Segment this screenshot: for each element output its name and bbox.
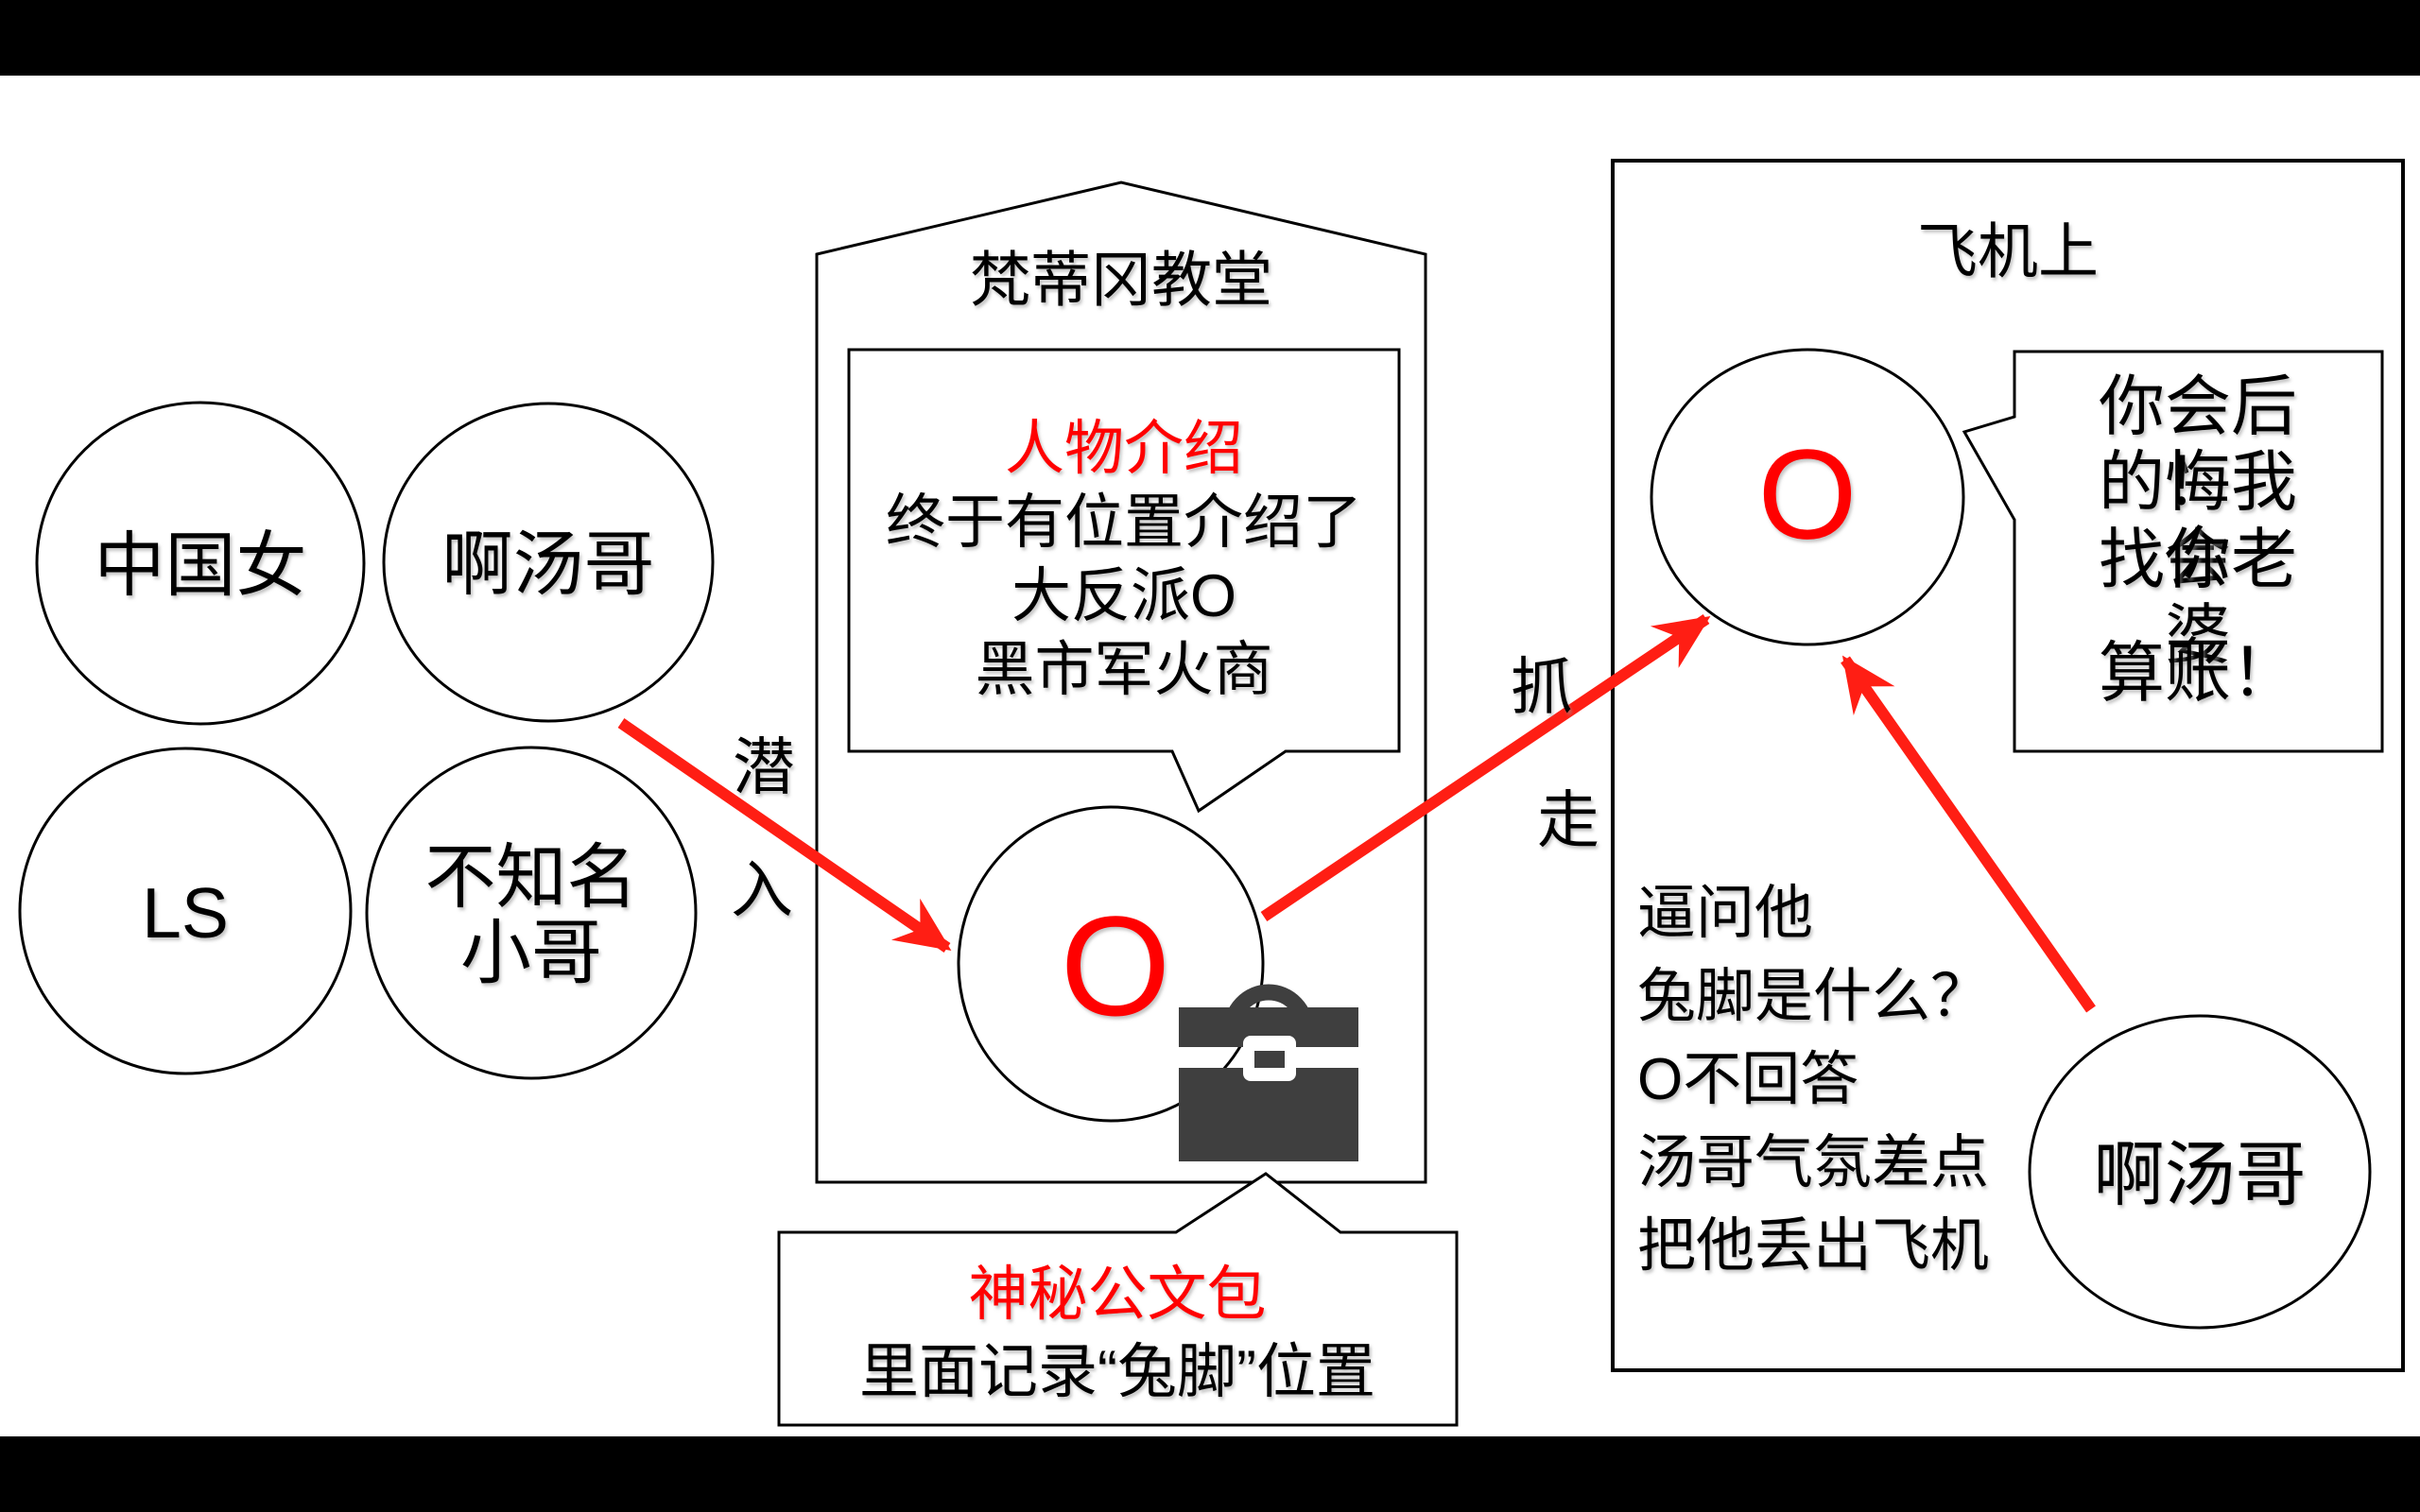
briefcase-icon (1179, 992, 1358, 1161)
sneak-label-1: 潜 (733, 728, 795, 806)
note-heading: 神秘公文包 (969, 1258, 1267, 1332)
label-chinese-woman: 中国女 (94, 527, 306, 603)
label-tom-plane: 啊汤哥 (2093, 1137, 2306, 1212)
sneak-label-2: 入 (731, 850, 793, 929)
narration-line-1: 逼问他 (1637, 865, 1813, 950)
intro-line-1: 终于有位置介绍了 (886, 486, 1362, 559)
label-ls: LS (142, 875, 229, 951)
villain-initial-plane: O (1757, 431, 1857, 558)
narration-line-5: 把他丢出飞机 (1637, 1197, 1989, 1282)
presentation-slide: 中国女 啊汤哥 LS 不知名 小哥 梵蒂冈教堂 人物介绍 终于有位置介绍了 大反… (0, 0, 2420, 1512)
church-title: 梵蒂冈教堂 (970, 243, 1272, 319)
briefcase-body (1179, 1068, 1358, 1161)
plane-title: 飞机上 (1917, 215, 2099, 291)
intro-line-2: 大反派O (1011, 559, 1236, 633)
narration-line-3: O不回答 (1637, 1031, 1858, 1116)
threat-line-4: 算账！ (2099, 635, 2297, 711)
letterbox-top (0, 0, 2420, 76)
narration-line-4: 汤哥气氛差点 (1637, 1114, 1989, 1199)
letterbox-bottom (0, 1436, 2420, 1512)
capture-label-2: 走 (1537, 781, 1599, 859)
label-unknown-guy: 不知名 小哥 (424, 839, 637, 990)
capture-label-1: 抓 (1511, 647, 1573, 726)
narration-line-2: 兔脚是什么？ (1637, 948, 1989, 1033)
intro-heading: 人物介绍 (1005, 412, 1243, 486)
intro-line-3: 黑市军火商 (976, 633, 1273, 707)
briefcase-clasp-button (1254, 1051, 1285, 1068)
note-body: 里面记录“兔脚”位置 (859, 1335, 1375, 1409)
villain-initial-church: O (1061, 895, 1171, 1037)
label-tom: 啊汤哥 (441, 526, 654, 602)
